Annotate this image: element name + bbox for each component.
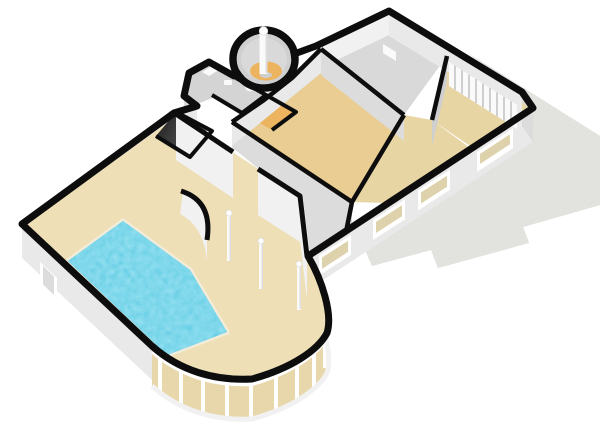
floorplan-stage: 3D floor plan render Isometric 3D render…	[0, 0, 600, 424]
floorplan-3d-render: 3D floor plan render Isometric 3D render…	[0, 0, 600, 424]
tower	[233, 27, 295, 88]
column-top	[259, 27, 267, 35]
sink-fixture	[224, 80, 232, 85]
